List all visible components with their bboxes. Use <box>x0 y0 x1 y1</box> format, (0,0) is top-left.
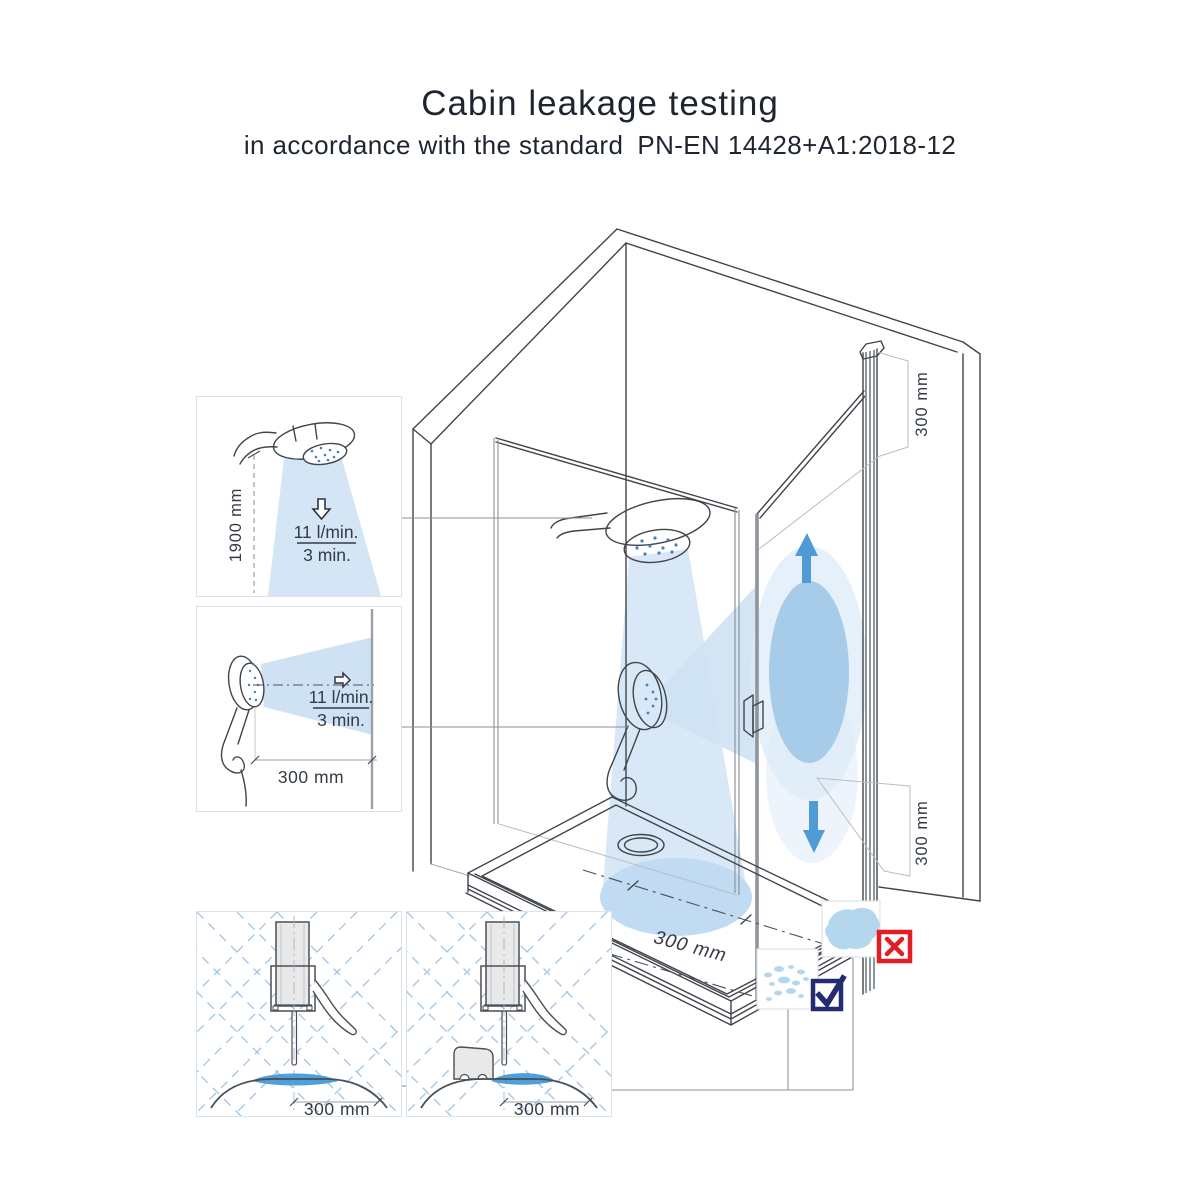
inset-bottom-seal-test: 300 mm <box>196 911 402 1117</box>
spray-nozzles <box>635 536 677 555</box>
distance-dimension-label: 300 mm <box>514 1099 580 1116</box>
pass-mark <box>813 978 843 1009</box>
glass-and-seal-section <box>271 922 356 1065</box>
flow-rate-label: 11 l/min. <box>294 522 359 542</box>
cabin-leakage-testing-diagram: Cabin leakage testing in accordance with… <box>0 0 1200 1200</box>
result-puddle-callout <box>822 901 880 957</box>
result-droplets-callout <box>757 949 818 1009</box>
door-spray-oval <box>769 581 849 763</box>
duration-label: 3 min. <box>317 710 365 730</box>
inset-bottom-seal-threshold-test: 300 mm <box>406 911 612 1117</box>
height-dimension-label: 1900 mm <box>227 488 245 562</box>
drip-lip <box>523 980 566 1035</box>
fail-mark <box>879 932 910 961</box>
inset-horizontal-spray-test: 11 l/min. 3 min. 300 mm <box>196 606 402 812</box>
door-top-dimension-label: 300 mm <box>913 371 931 437</box>
spray-fills <box>600 546 867 936</box>
tray-splash-ellipse <box>600 858 752 936</box>
distance-dimension-label: 300 mm <box>304 1099 370 1116</box>
drip-lip <box>313 980 356 1035</box>
inset-overhead-spray-test: 1900 mm 11 l/min. 3 min. <box>196 396 402 597</box>
threshold-profile <box>454 1047 493 1079</box>
overhead-shower-head <box>551 490 714 566</box>
flow-rate-label: 11 l/min. <box>309 687 374 707</box>
duration-label: 3 min. <box>303 545 351 565</box>
door-bottom-dimension-label: 300 mm <box>913 800 931 866</box>
distance-dimension-label: 300 mm <box>278 767 344 787</box>
glass-and-seal-section <box>481 922 566 1065</box>
